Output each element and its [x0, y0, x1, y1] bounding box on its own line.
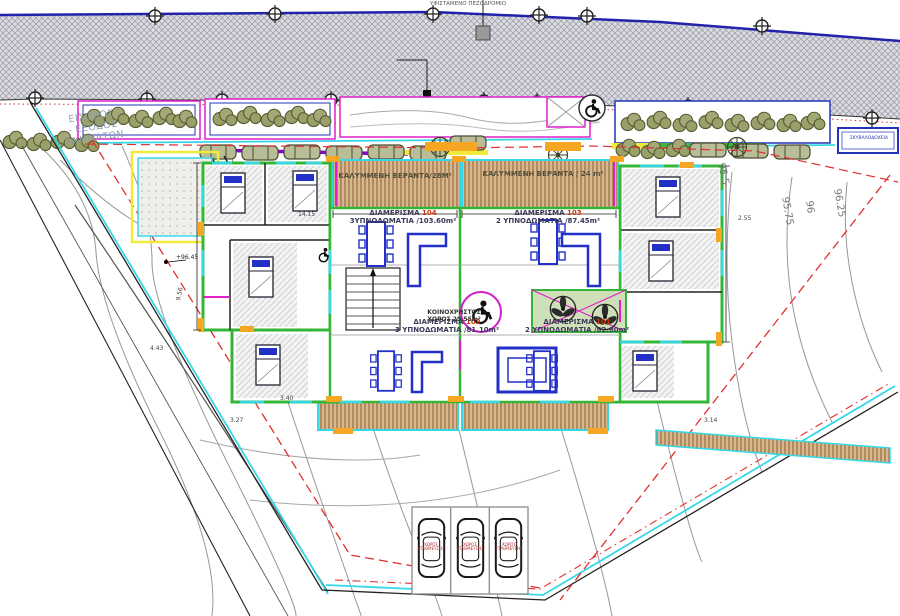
- top-veranda: [332, 160, 618, 208]
- elevator-circle: [461, 292, 501, 332]
- bins-box: [838, 128, 898, 153]
- car-icon: [416, 519, 447, 577]
- pergola-fans: [532, 290, 626, 332]
- stairs-icon: [346, 268, 400, 330]
- parking-stalls: [412, 507, 528, 594]
- plan-drawing: [0, 0, 900, 616]
- bottom-left-wing: [232, 330, 345, 402]
- bottom-right-wing: [608, 342, 708, 402]
- car-icon: [455, 519, 486, 577]
- site-plan: ΕΙΣΟΔΟΣ - ΕΞΟΔΟΣ ΟΧΗΜΑΤΩΝ ΥΦΙΣΤΑΜΕΝΟ ΠΕΖ…: [0, 0, 900, 616]
- building: [193, 142, 890, 463]
- car-icon: [493, 519, 524, 577]
- spot-level-point: [164, 260, 168, 264]
